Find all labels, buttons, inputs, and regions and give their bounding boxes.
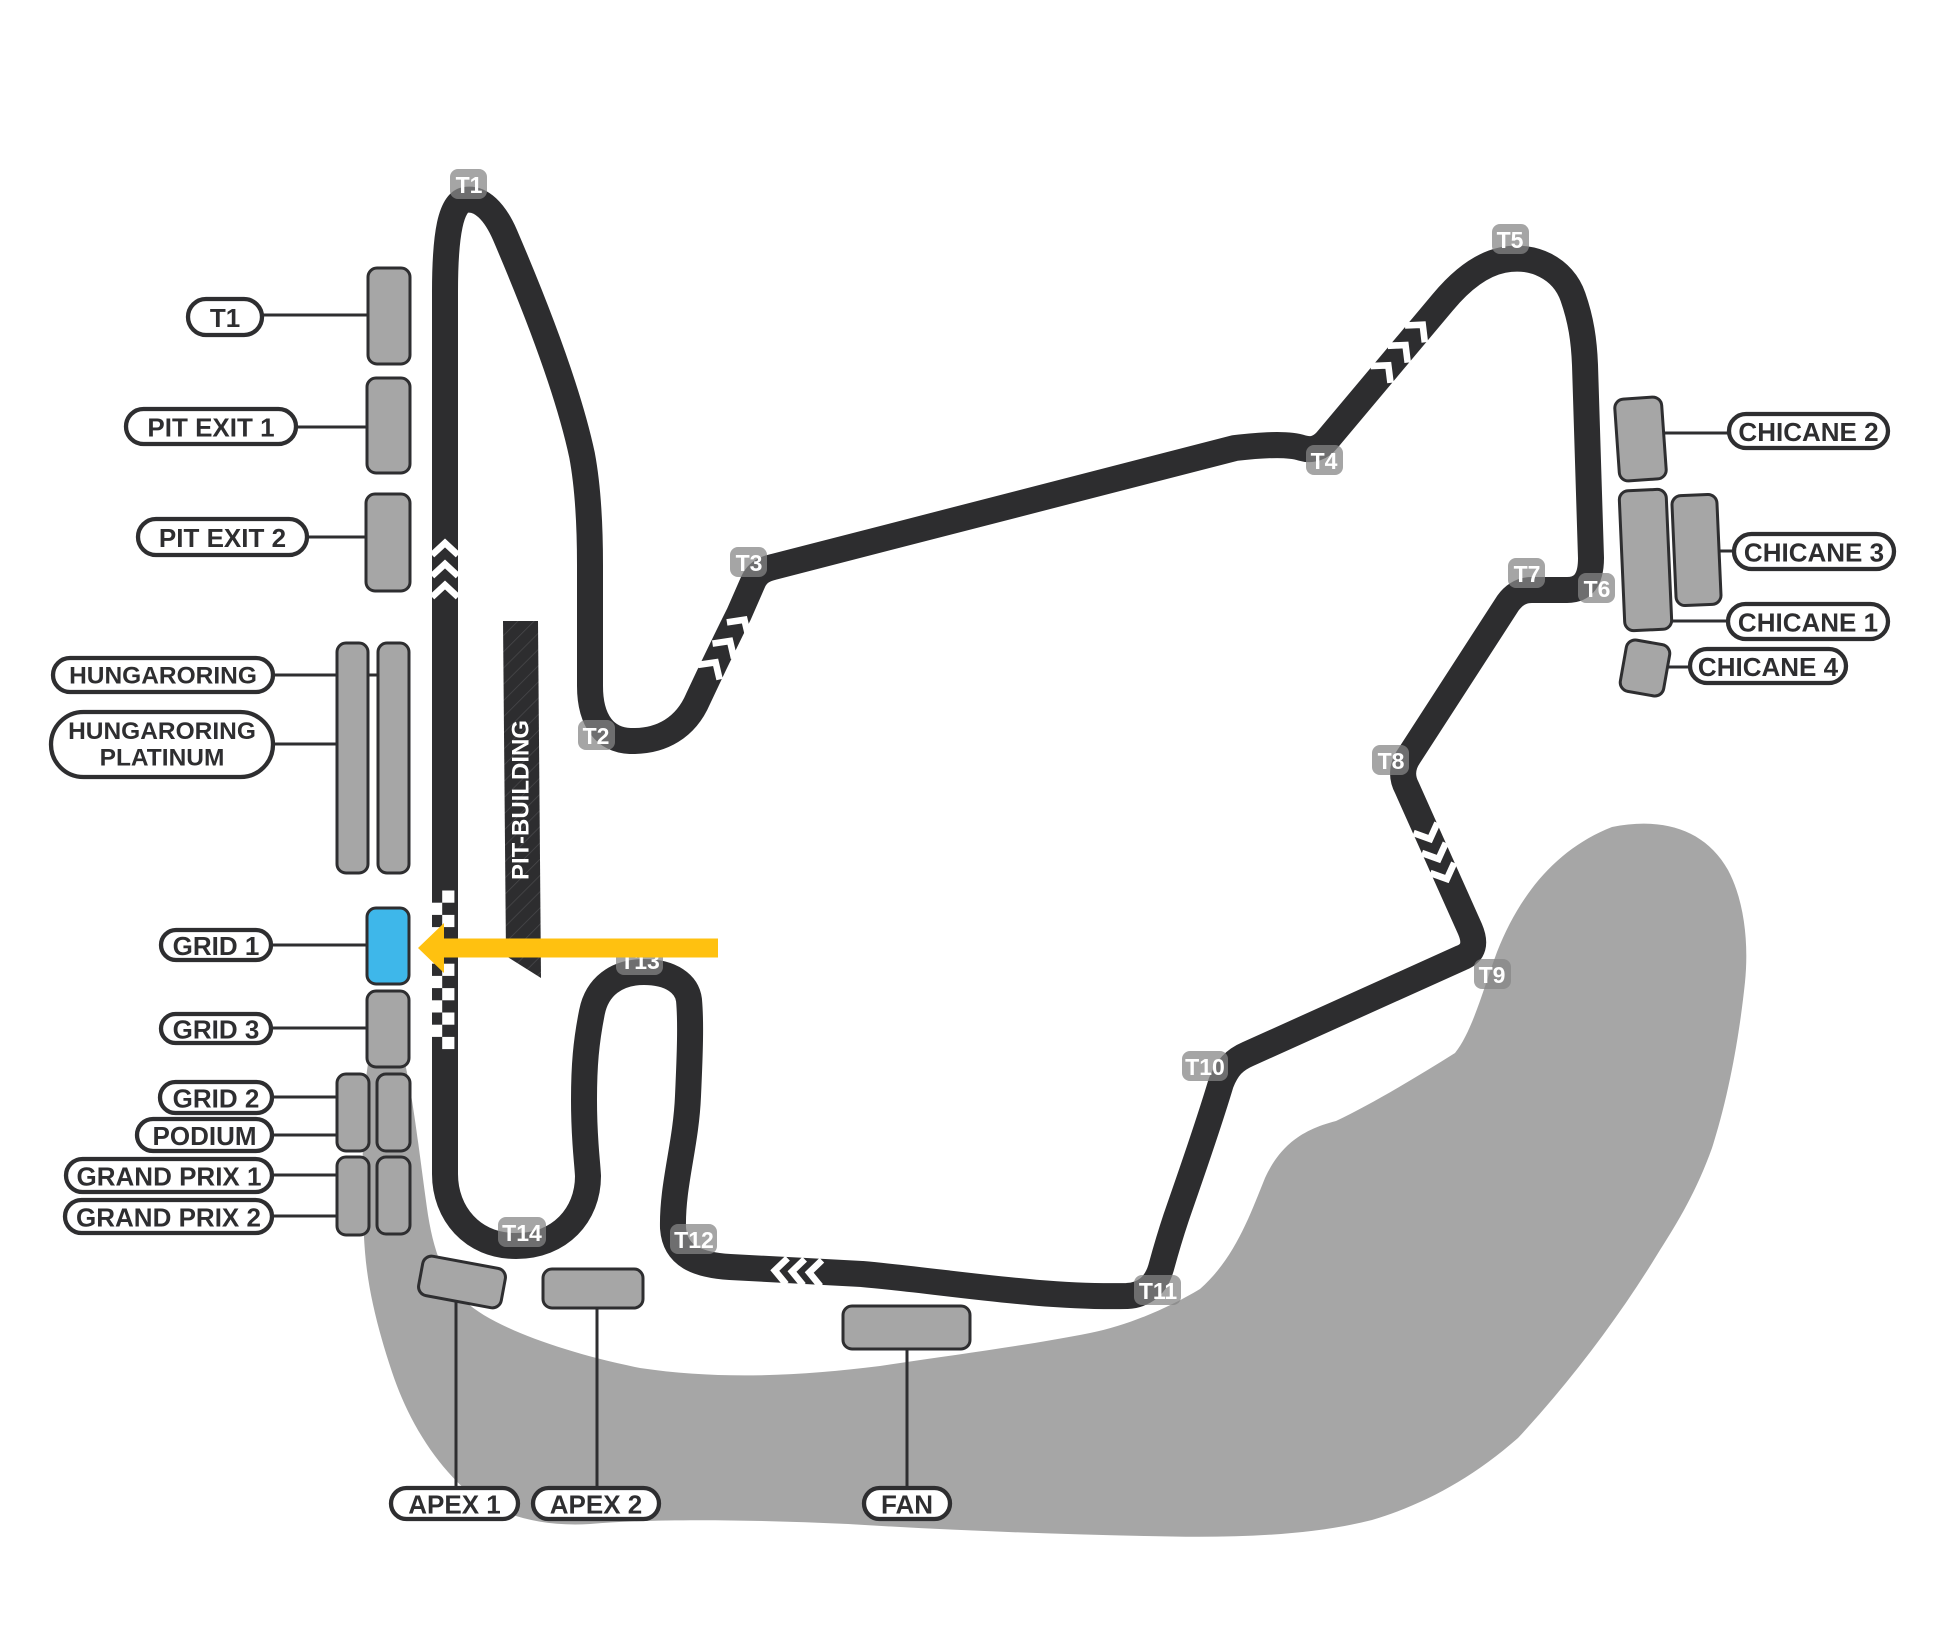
svg-text:PLATINUM: PLATINUM bbox=[100, 744, 225, 771]
svg-text:HUNGARORING: HUNGARORING bbox=[68, 718, 256, 745]
svg-text:T7: T7 bbox=[1514, 561, 1541, 587]
svg-text:PIT EXIT 2: PIT EXIT 2 bbox=[159, 523, 286, 553]
svg-text:APEX 2: APEX 2 bbox=[550, 1490, 643, 1520]
svg-text:T1: T1 bbox=[456, 172, 483, 198]
svg-text:CHICANE 1: CHICANE 1 bbox=[1738, 608, 1878, 638]
svg-text:T14: T14 bbox=[502, 1220, 542, 1246]
svg-text:FAN: FAN bbox=[881, 1490, 933, 1520]
svg-text:T9: T9 bbox=[1479, 962, 1506, 988]
svg-text:T6: T6 bbox=[1584, 576, 1611, 602]
svg-text:T3: T3 bbox=[736, 550, 763, 576]
svg-text:APEX 1: APEX 1 bbox=[408, 1490, 501, 1520]
svg-text:GRID 2: GRID 2 bbox=[173, 1084, 260, 1114]
svg-text:T11: T11 bbox=[1139, 1278, 1178, 1304]
svg-text:T12: T12 bbox=[674, 1227, 714, 1253]
svg-text:T1: T1 bbox=[210, 303, 240, 333]
svg-text:PIT EXIT 1: PIT EXIT 1 bbox=[147, 413, 274, 443]
svg-text:T2: T2 bbox=[583, 723, 610, 749]
svg-text:T8: T8 bbox=[1378, 748, 1405, 774]
svg-text:HUNGARORING: HUNGARORING bbox=[69, 663, 257, 690]
svg-text:T10: T10 bbox=[1185, 1054, 1225, 1080]
svg-text:T4: T4 bbox=[1311, 448, 1338, 474]
svg-text:PODIUM: PODIUM bbox=[153, 1121, 257, 1151]
svg-text:PIT-BUILDING: PIT-BUILDING bbox=[508, 720, 535, 880]
svg-text:GRID 1: GRID 1 bbox=[173, 931, 260, 961]
svg-text:GRAND PRIX 2: GRAND PRIX 2 bbox=[76, 1203, 261, 1233]
svg-text:CHICANE 3: CHICANE 3 bbox=[1744, 538, 1884, 568]
svg-text:GRAND PRIX 1: GRAND PRIX 1 bbox=[77, 1162, 262, 1192]
svg-text:GRID 3: GRID 3 bbox=[173, 1015, 260, 1045]
svg-text:CHICANE 2: CHICANE 2 bbox=[1738, 417, 1878, 447]
svg-text:CHICANE 4: CHICANE 4 bbox=[1698, 652, 1839, 682]
svg-text:T5: T5 bbox=[1497, 227, 1524, 253]
